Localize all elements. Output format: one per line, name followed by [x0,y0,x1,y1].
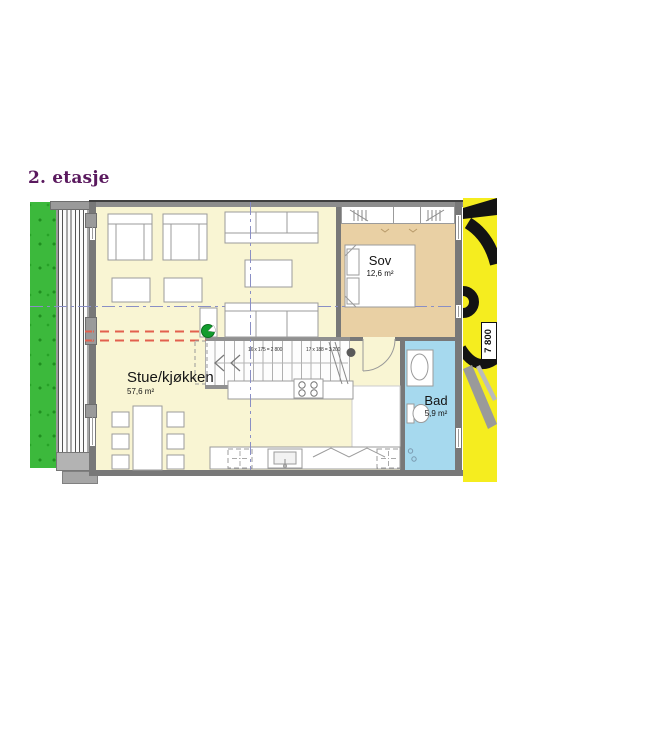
width-dimension-label: 7 800 [481,322,497,360]
interior-wall-bedroom [336,207,341,337]
black-ring [463,291,474,313]
wall-pier-3 [85,404,97,418]
living-room-label: Stue/kjøkken [127,370,214,386]
living-room-label-group: Stue/kjøkken 57,6 m² [127,370,214,396]
bathroom-area: 5,9 m² [414,410,458,418]
floor-plan-page: 2. etasje 7 800 [0,0,650,750]
wardrobe [341,206,455,224]
bedroom-area: 12,6 m² [345,270,415,278]
stair-stringer-top [205,337,350,341]
living-room-area: 57,6 m² [127,388,214,396]
wall-pier-2 [85,317,97,345]
stair-annotation-right: 17 x 188 = 3 200 [306,347,340,353]
exterior-wall-bottom [89,470,463,476]
stair-annotation-left: 16 x 175 = 2 800 [248,347,282,353]
black-arc-top [468,223,496,264]
bedroom-label: Sov [345,254,415,268]
bathroom-label-group: Bad 5,9 m² [414,394,458,418]
page-title: 2. etasje [28,168,110,188]
window-right-1 [456,215,461,240]
wall-pier-1 [85,213,97,228]
stair-stringer-bottom [205,385,350,389]
bathroom-label: Bad [414,394,458,408]
black-band [463,198,497,219]
window-right-2 [456,305,461,318]
exterior-wall-top [89,202,463,207]
window-right-3 [456,428,461,448]
bedroom-label-group: Sov 12,6 m² [345,254,415,278]
bedroom [341,224,455,337]
interior-wall-bathroom [400,337,405,470]
lawn [30,202,56,468]
